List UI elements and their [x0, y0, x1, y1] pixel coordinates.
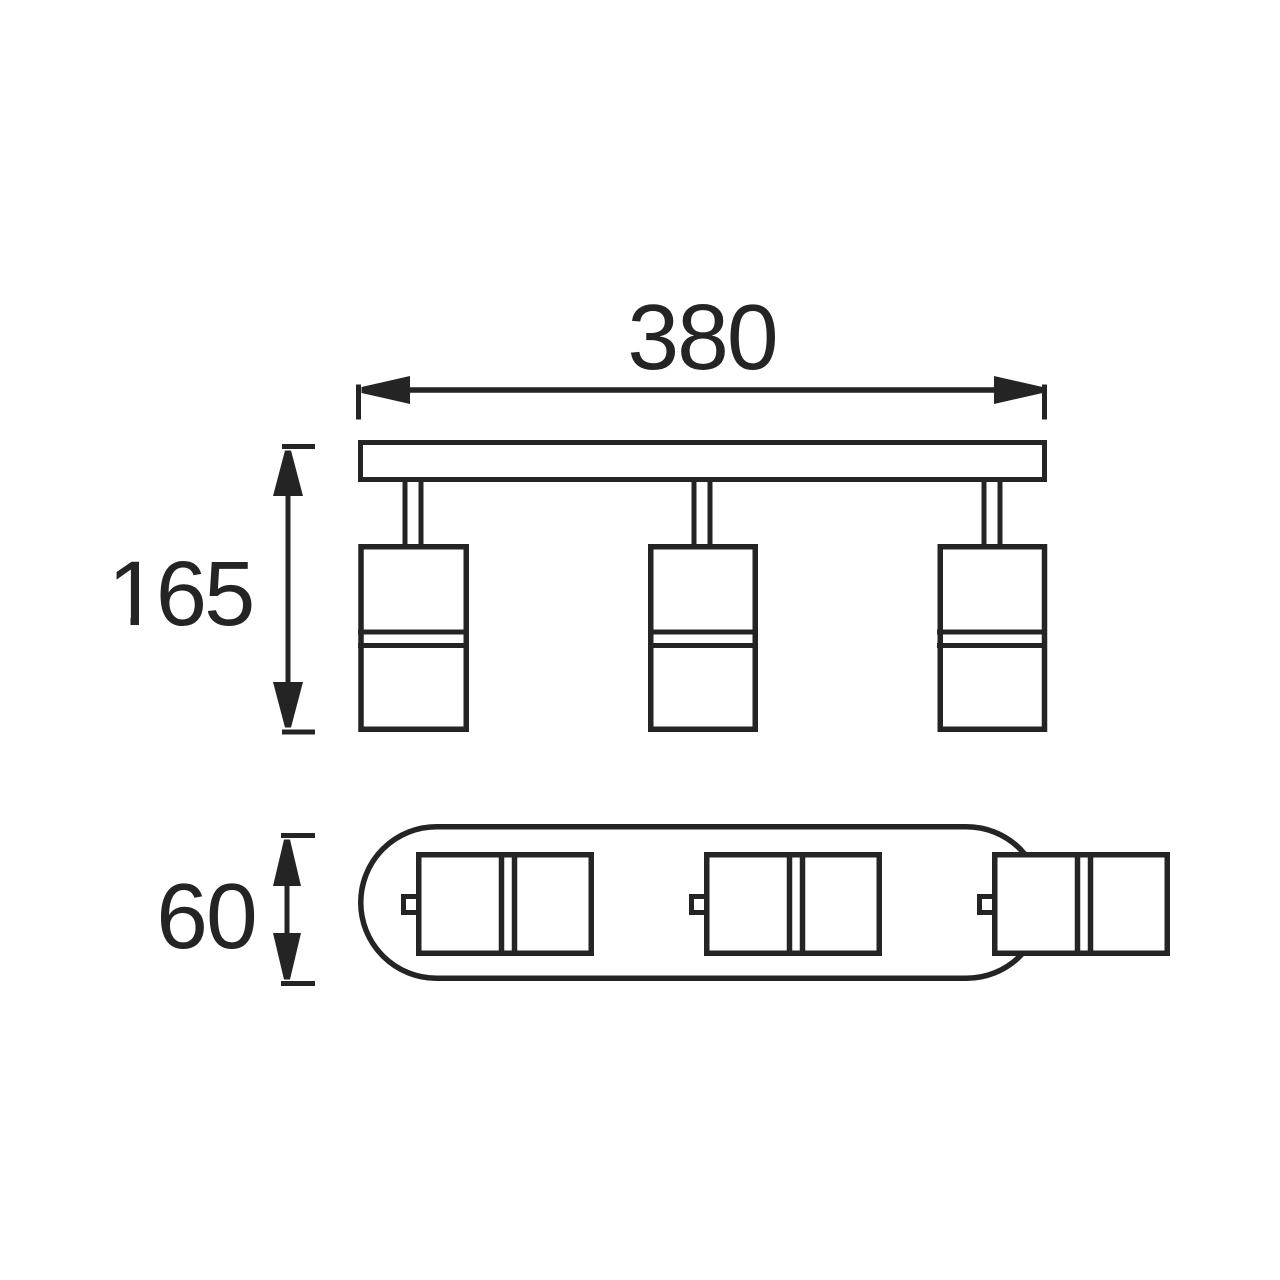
- svg-text:60: 60: [156, 864, 255, 968]
- svg-text:380: 380: [627, 285, 776, 389]
- svg-text:165: 165: [108, 543, 253, 645]
